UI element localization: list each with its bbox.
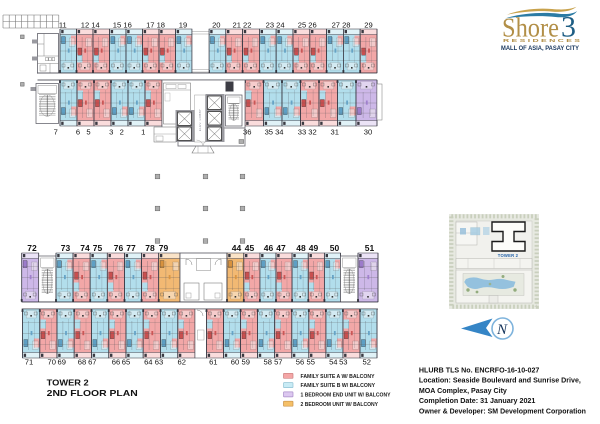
svg-text:76: 76 bbox=[114, 243, 124, 253]
svg-text:26: 26 bbox=[308, 21, 316, 30]
svg-text:79: 79 bbox=[159, 243, 169, 253]
svg-text:44: 44 bbox=[232, 243, 242, 253]
svg-text:20: 20 bbox=[212, 21, 220, 30]
svg-text:22: 22 bbox=[243, 21, 251, 30]
svg-text:2 BEDROOM UNIT W/ BALCONY: 2 BEDROOM UNIT W/ BALCONY bbox=[301, 402, 379, 408]
svg-text:33: 33 bbox=[298, 128, 306, 137]
svg-text:53: 53 bbox=[339, 358, 347, 367]
svg-text:49: 49 bbox=[309, 243, 319, 253]
svg-text:74: 74 bbox=[80, 243, 90, 253]
svg-text:21: 21 bbox=[232, 21, 240, 30]
svg-text:55: 55 bbox=[306, 358, 314, 367]
svg-text:63: 63 bbox=[155, 358, 163, 367]
svg-text:54: 54 bbox=[329, 358, 337, 367]
svg-text:MALL OF ASIA, PASAY CITY: MALL OF ASIA, PASAY CITY bbox=[501, 46, 579, 52]
svg-text:35: 35 bbox=[265, 128, 273, 137]
svg-text:46: 46 bbox=[264, 243, 274, 253]
svg-text:29: 29 bbox=[364, 21, 372, 30]
svg-text:47: 47 bbox=[276, 243, 286, 253]
svg-text:18: 18 bbox=[157, 21, 165, 30]
svg-text:50: 50 bbox=[330, 243, 340, 253]
svg-text:56: 56 bbox=[296, 358, 304, 367]
svg-text:24: 24 bbox=[276, 21, 284, 30]
svg-text:7: 7 bbox=[54, 128, 58, 137]
svg-text:1: 1 bbox=[141, 128, 145, 137]
svg-text:1 BEDROOM END UNIT W/ BALCONY: 1 BEDROOM END UNIT W/ BALCONY bbox=[301, 393, 391, 399]
svg-text:65: 65 bbox=[122, 358, 130, 367]
svg-text:2: 2 bbox=[120, 128, 124, 137]
svg-text:34: 34 bbox=[275, 128, 283, 137]
svg-text:58: 58 bbox=[263, 358, 271, 367]
svg-text:FAMILY SUITE A W/ BALCONY: FAMILY SUITE A W/ BALCONY bbox=[301, 374, 375, 380]
svg-text:MOA Complex, Pasay City: MOA Complex, Pasay City bbox=[419, 388, 507, 395]
svg-text:60: 60 bbox=[231, 358, 239, 367]
svg-text:2ND FLOOR PLAN: 2ND FLOOR PLAN bbox=[47, 389, 138, 398]
svg-text:17: 17 bbox=[146, 21, 154, 30]
svg-text:19: 19 bbox=[179, 21, 187, 30]
svg-text:27: 27 bbox=[332, 21, 340, 30]
svg-text:14: 14 bbox=[91, 21, 99, 30]
svg-text:HLURB TLS No. ENCRFO-16-10-027: HLURB TLS No. ENCRFO-16-10-027 bbox=[419, 368, 540, 375]
svg-text:36: 36 bbox=[243, 128, 251, 137]
svg-text:ELEV. LOBBY: ELEV. LOBBY bbox=[198, 109, 202, 131]
svg-text:68: 68 bbox=[78, 358, 86, 367]
svg-text:52: 52 bbox=[362, 358, 370, 367]
svg-text:78: 78 bbox=[145, 243, 155, 253]
svg-text:51: 51 bbox=[365, 243, 375, 253]
svg-text:70: 70 bbox=[47, 358, 55, 367]
svg-text:75: 75 bbox=[93, 243, 103, 253]
svg-text:30: 30 bbox=[364, 128, 372, 137]
svg-text:23: 23 bbox=[266, 21, 274, 30]
svg-text:77: 77 bbox=[126, 243, 136, 253]
svg-text:69: 69 bbox=[57, 358, 65, 367]
svg-text:3: 3 bbox=[109, 128, 113, 137]
svg-text:5: 5 bbox=[86, 128, 90, 137]
svg-text:6: 6 bbox=[76, 128, 80, 137]
svg-text:45: 45 bbox=[245, 243, 255, 253]
svg-text:32: 32 bbox=[308, 128, 316, 137]
svg-text:62: 62 bbox=[177, 358, 185, 367]
svg-text:FAMILY SUITE B W/ BALCONY: FAMILY SUITE B W/ BALCONY bbox=[301, 383, 376, 389]
svg-text:N: N bbox=[496, 322, 508, 338]
svg-text:TOWER 2: TOWER 2 bbox=[47, 378, 89, 387]
svg-text:16: 16 bbox=[123, 21, 131, 30]
svg-text:67: 67 bbox=[88, 358, 96, 367]
svg-text:Location: Seaside Boulevard an: Location: Seaside Boulevard and Sunrise … bbox=[419, 378, 581, 385]
svg-text:66: 66 bbox=[112, 358, 120, 367]
svg-text:25: 25 bbox=[298, 21, 306, 30]
svg-text:61: 61 bbox=[209, 358, 217, 367]
svg-text:12: 12 bbox=[81, 21, 89, 30]
svg-text:31: 31 bbox=[330, 128, 338, 137]
svg-text:28: 28 bbox=[342, 21, 350, 30]
svg-text:48: 48 bbox=[296, 243, 306, 253]
svg-text:57: 57 bbox=[274, 358, 282, 367]
svg-text:71: 71 bbox=[25, 358, 33, 367]
svg-text:64: 64 bbox=[144, 358, 152, 367]
svg-text:72: 72 bbox=[27, 243, 37, 253]
svg-text:R E S I D E N C E S: R E S I D E N C E S bbox=[503, 38, 580, 43]
svg-text:Owner & Developer: SM Developm: Owner & Developer: SM Development Corpor… bbox=[419, 408, 586, 415]
svg-text:Completion Date: 31 January 20: Completion Date: 31 January 2021 bbox=[419, 398, 536, 405]
svg-text:73: 73 bbox=[61, 243, 71, 253]
svg-text:TOWER 2: TOWER 2 bbox=[498, 253, 519, 258]
svg-text:59: 59 bbox=[241, 358, 249, 367]
svg-text:11: 11 bbox=[59, 21, 67, 30]
svg-text:15: 15 bbox=[113, 21, 121, 30]
